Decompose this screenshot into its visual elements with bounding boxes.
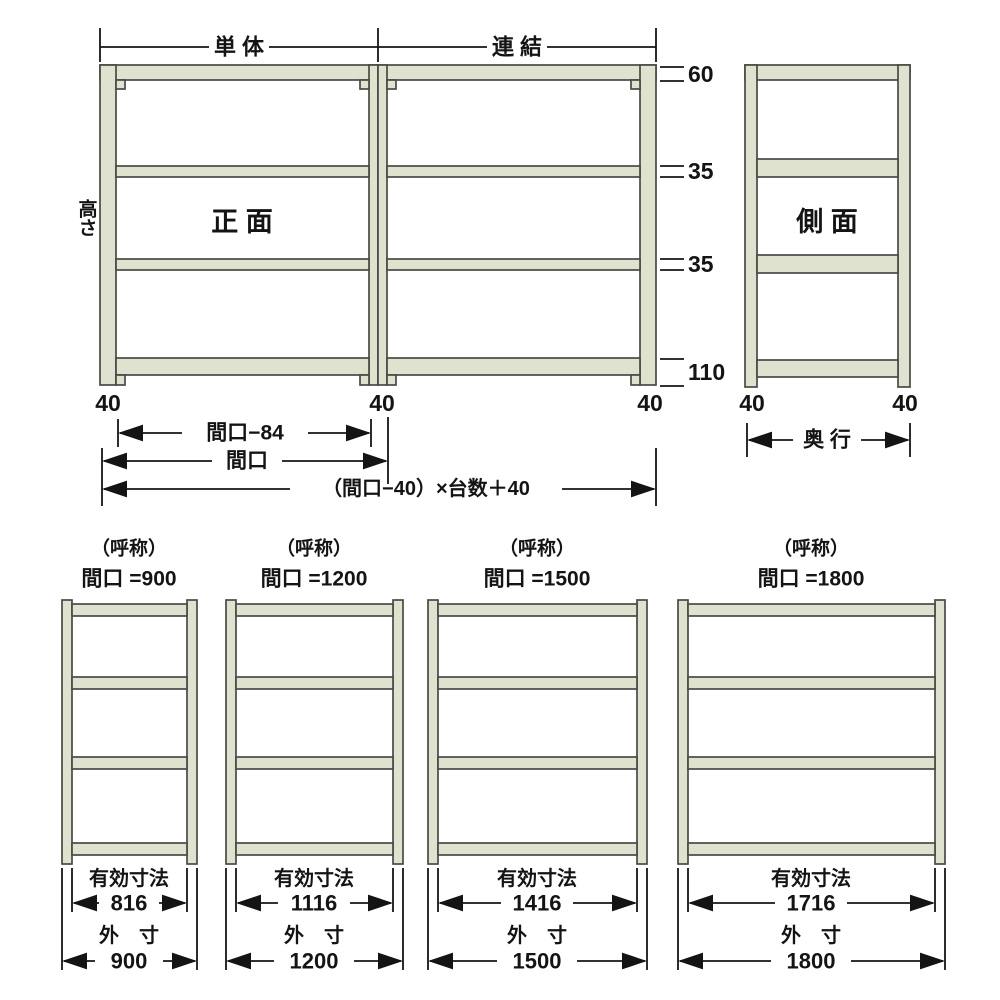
post (393, 600, 403, 864)
linked-unit-label: 連 結 (492, 35, 542, 60)
front-right-dimensions: 60 35 35 110 (660, 61, 725, 386)
shelf-bar (688, 757, 935, 769)
side-view: 側 面 40 40 奥 行 (739, 65, 918, 457)
variant-caption: （呼称） (773, 537, 849, 560)
foot-bracket (116, 375, 125, 385)
effective-size-label: 有効寸法 (497, 866, 577, 890)
front-bottom-dimensions: 40 40 40 間口−84 間口 （間口−40）×台数＋40 (95, 390, 663, 506)
shelf-bar (116, 259, 369, 270)
width-dim: 間口 (226, 450, 268, 473)
shelf-bar (72, 757, 187, 769)
dim-top-beam: 60 (688, 61, 714, 87)
effective-size-value: 1716 (787, 891, 836, 916)
beam-bracket (387, 80, 396, 89)
post-width-right: 40 (892, 390, 918, 416)
effective-size-label: 有効寸法 (771, 866, 851, 890)
post (187, 600, 197, 864)
post (637, 600, 647, 864)
shelf-bar (72, 604, 187, 616)
post (369, 65, 378, 385)
shelf-bar (757, 255, 898, 273)
front-view-title: 正 面 (211, 207, 273, 237)
outer-size-value: 1200 (290, 949, 339, 974)
shelf-bar (438, 677, 637, 689)
post-width-middle: 40 (369, 390, 395, 416)
outer-size-value: 1800 (787, 949, 836, 974)
variant-caption: （呼称） (91, 537, 167, 560)
variant-caption: （呼称） (276, 537, 352, 560)
top-beam (745, 65, 910, 80)
variant-1500: （呼称） 間口 =1500 有効寸法 1416 外 寸 1500 (428, 537, 647, 974)
variant-title: 間口 =900 (81, 568, 176, 591)
bottom-beam (757, 360, 898, 377)
post (678, 600, 688, 864)
shelf-bar (757, 159, 898, 177)
inner-width-dim: 間口−84 (206, 422, 284, 445)
single-unit-label: 単 体 (214, 35, 265, 60)
shelf-bar (688, 604, 935, 616)
effective-size-value: 816 (111, 891, 148, 916)
shelving-dimension-diagram: 単 体 連 結 高さ 正 面 60 35 (0, 0, 1000, 1000)
post (100, 65, 116, 385)
outer-size-label: 外 寸 (99, 923, 159, 947)
bottom-beam (387, 358, 640, 375)
shelf-bar (72, 843, 187, 855)
height-label: 高さ (76, 198, 98, 237)
variant-1200: （呼称） 間口 =1200 有効寸法 1116 外 寸 1200 (226, 537, 403, 974)
shelf-bar (236, 757, 393, 769)
unit-span-dimension: 単 体 連 結 (100, 28, 656, 62)
shelf-bar (438, 757, 637, 769)
foot-bracket (631, 375, 640, 385)
shelf-bar (387, 166, 640, 177)
top-beam (378, 65, 656, 80)
shelf-bar (236, 843, 393, 855)
bottom-beam (116, 358, 369, 375)
post (898, 65, 910, 387)
beam-bracket (360, 80, 369, 89)
foot-bracket (387, 375, 396, 385)
variant-title: 間口 =1200 (261, 568, 368, 591)
post-width-left: 40 (739, 390, 765, 416)
post (745, 65, 757, 387)
outer-size-value: 900 (111, 949, 148, 974)
variant-caption: （呼称） (499, 537, 575, 560)
effective-size-label: 有効寸法 (274, 866, 354, 890)
post-width-left: 40 (95, 390, 121, 416)
diagram-canvas: 単 体 連 結 高さ 正 面 60 35 (0, 0, 1000, 1000)
outer-size-label: 外 寸 (781, 923, 841, 947)
dim-shelf-1: 35 (688, 158, 714, 184)
shelf-bar (72, 677, 187, 689)
side-view-title: 側 面 (795, 207, 858, 237)
top-beam (100, 65, 378, 80)
variant-1800: （呼称） 間口 =1800 有効寸法 1716 外 寸 1800 (678, 537, 945, 974)
dim-bottom-beam: 110 (688, 359, 725, 385)
shelf-bar (236, 604, 393, 616)
outer-size-label: 外 寸 (284, 923, 344, 947)
effective-size-value: 1116 (291, 891, 338, 916)
shelf-bar (688, 843, 935, 855)
shelf-bar (387, 259, 640, 270)
post (428, 600, 438, 864)
effective-size-value: 1416 (513, 891, 562, 916)
depth-dim: 奥 行 (803, 428, 851, 452)
front-view: 高さ 正 面 (76, 65, 657, 385)
outer-size-value: 1500 (513, 949, 562, 974)
post (378, 65, 387, 385)
variant-900: （呼称） 間口 =900 有効寸法 816 外 寸 900 (62, 537, 197, 974)
post (640, 65, 656, 385)
total-width-formula: （間口−40）×台数＋40 (322, 476, 530, 500)
post (935, 600, 945, 864)
beam-bracket (116, 80, 125, 89)
outer-size-label: 外 寸 (507, 923, 567, 947)
post (62, 600, 72, 864)
variant-title: 間口 =1800 (758, 568, 865, 591)
effective-size-label: 有効寸法 (89, 866, 169, 890)
dim-shelf-2: 35 (688, 251, 714, 277)
shelf-bar (438, 843, 637, 855)
beam-bracket (631, 80, 640, 89)
variant-title: 間口 =1500 (484, 568, 591, 591)
shelf-bar (688, 677, 935, 689)
foot-bracket (360, 375, 369, 385)
post-width-right: 40 (637, 390, 663, 416)
shelf-bar (438, 604, 637, 616)
shelf-bar (236, 677, 393, 689)
shelf-bar (116, 166, 369, 177)
post (226, 600, 236, 864)
